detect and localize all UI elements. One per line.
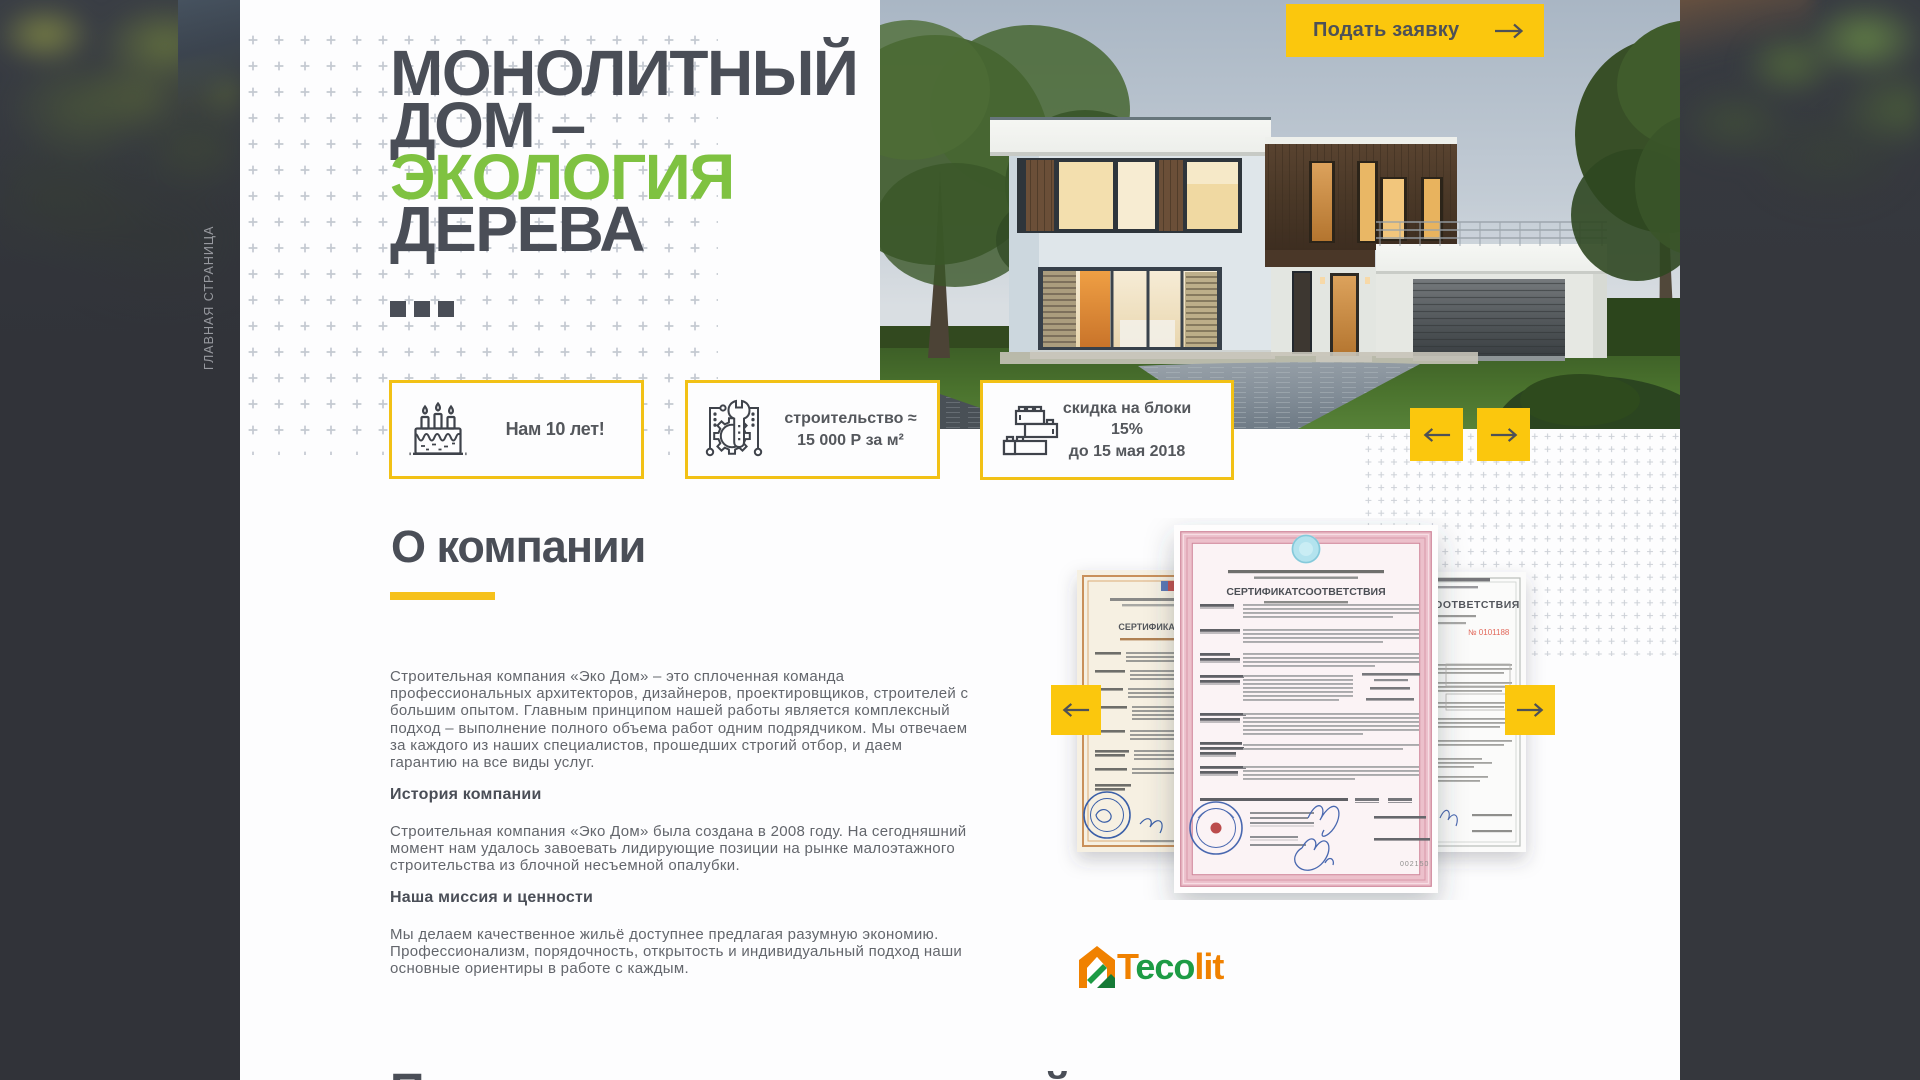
svg-text:СЕРТИФИКАТСООТВЕТСТВИЯ: СЕРТИФИКАТСООТВЕТСТВИЯ [1226,586,1385,598]
svg-text:№ 0101188: № 0101188 [1468,628,1510,637]
svg-text:002150: 002150 [1400,861,1429,868]
